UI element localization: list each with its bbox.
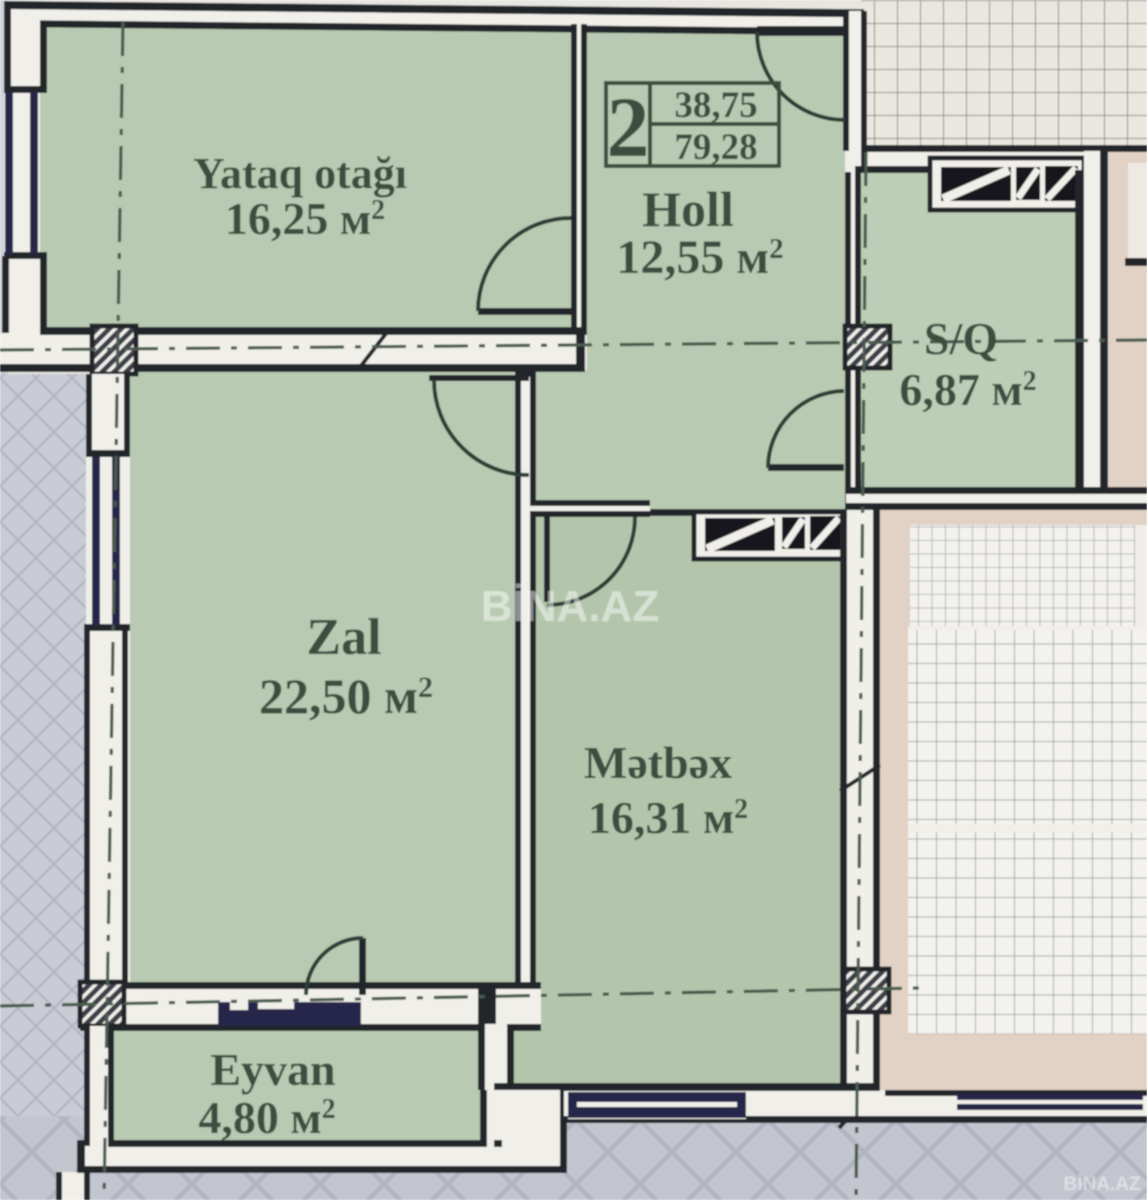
svg-text:BİNA.AZ: BİNA.AZ [1063, 1174, 1140, 1195]
svg-text:6,87 м2: 6,87 м2 [899, 364, 1036, 415]
svg-text:4,80 м2: 4,80 м2 [198, 1092, 335, 1143]
svg-text:2: 2 [607, 79, 650, 175]
svg-text:S/Q: S/Q [924, 313, 998, 364]
svg-text:22,50 м2: 22,50 м2 [259, 668, 433, 724]
svg-text:Yataq otağı: Yataq otağı [193, 149, 407, 198]
svg-text:Zal: Zal [306, 609, 381, 666]
svg-text:Holl: Holl [642, 181, 734, 237]
svg-text:16,31 м2: 16,31 м2 [588, 792, 748, 843]
svg-text:16,25 м2: 16,25 м2 [225, 193, 385, 244]
svg-text:79,28: 79,28 [674, 127, 757, 168]
svg-text:BİNA.AZ: BİNA.AZ [481, 582, 659, 631]
svg-text:38,75: 38,75 [674, 85, 757, 126]
svg-text:12,55 м2: 12,55 м2 [616, 231, 783, 284]
svg-text:Eyvan: Eyvan [210, 1044, 335, 1095]
svg-text:Mətbəx: Mətbəx [584, 737, 732, 788]
